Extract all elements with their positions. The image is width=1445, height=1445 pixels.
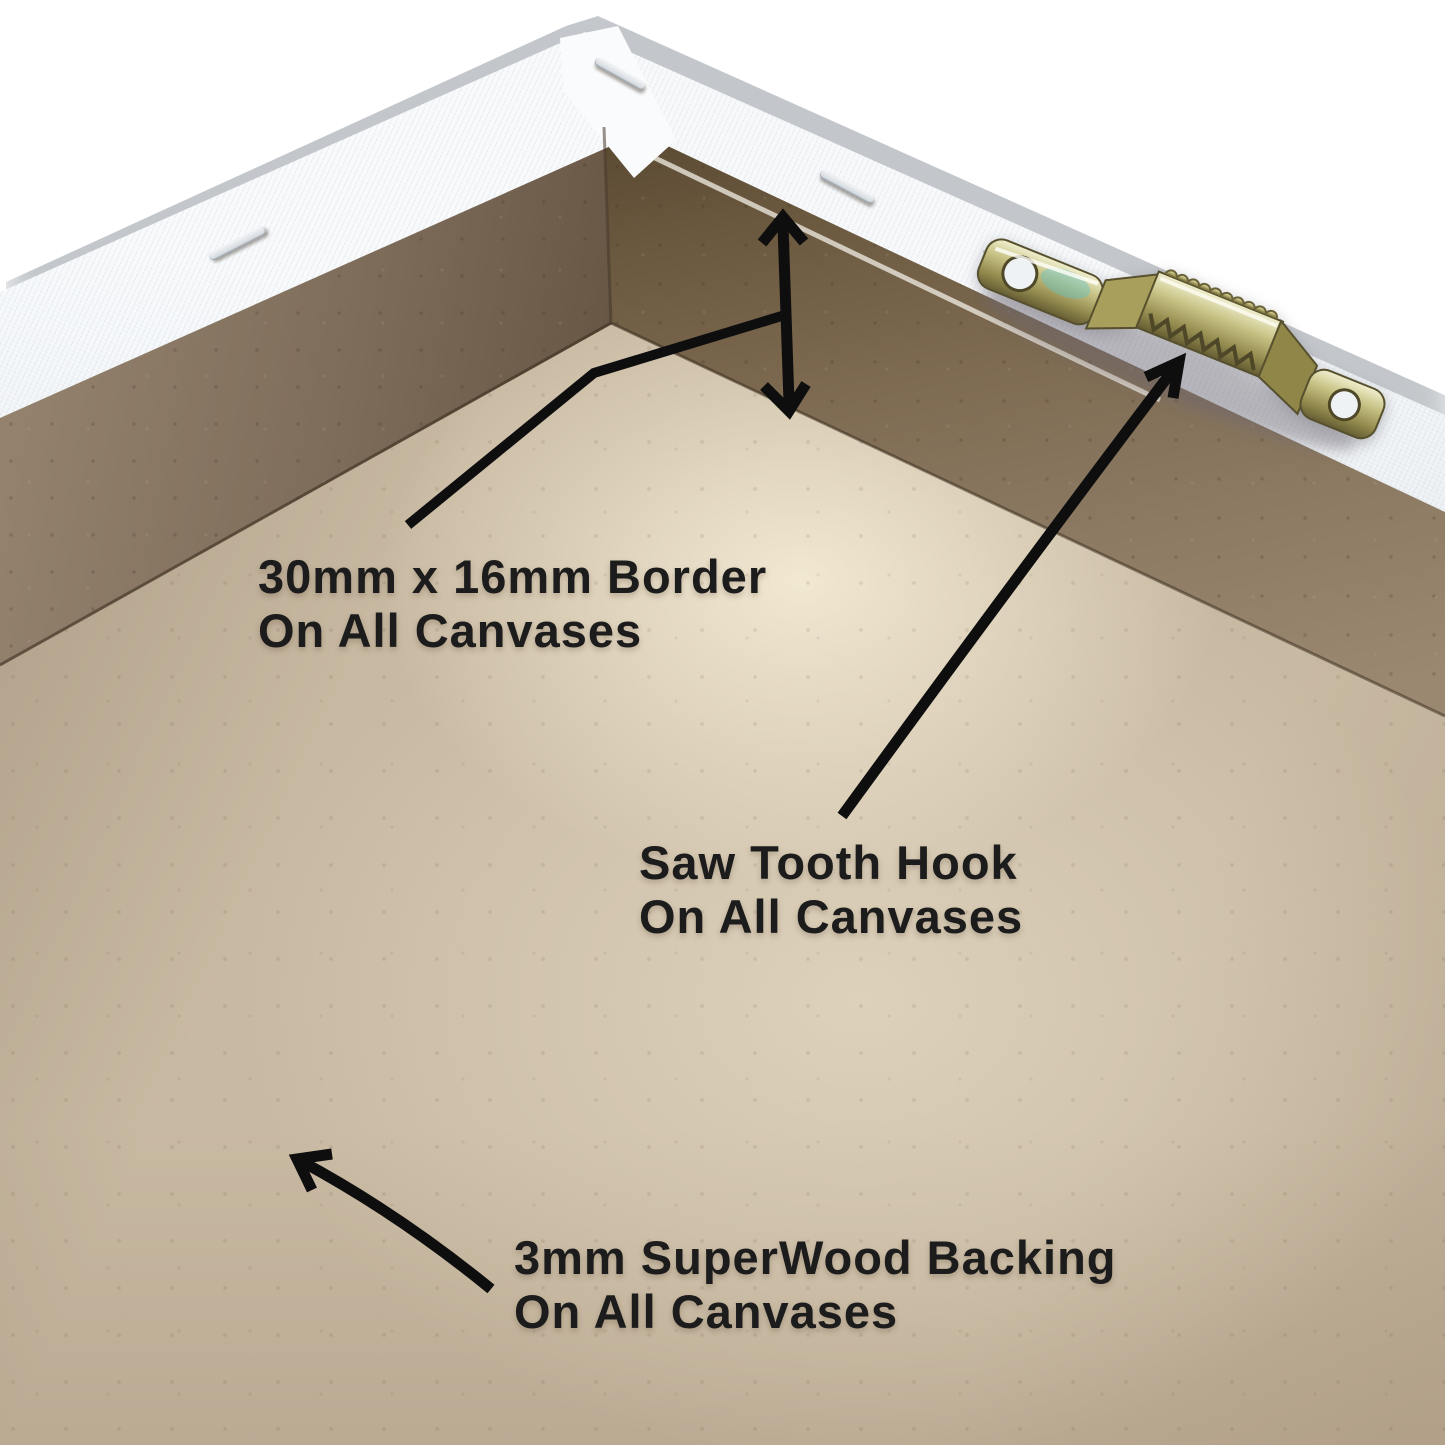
border-annotation-line1: 30mm x 16mm Border [258,550,767,604]
saw-tooth-annotation: Saw Tooth Hook On All Canvases [639,836,1023,944]
saw-tooth-hook [975,168,1445,468]
backing-annotation: 3mm SuperWood Backing On All Canvases [514,1231,1117,1339]
saw-tooth-annotation-line2: On All Canvases [639,890,1023,944]
backing-annotation-line2: On All Canvases [514,1285,1117,1339]
border-annotation-line2: On All Canvases [258,604,767,658]
border-annotation: 30mm x 16mm Border On All Canvases [258,550,767,658]
backing-annotation-line1: 3mm SuperWood Backing [514,1231,1117,1285]
annotated-canvas-back-photo: 30mm x 16mm Border On All Canvases Saw T… [0,0,1445,1445]
saw-tooth-annotation-line1: Saw Tooth Hook [639,836,1023,890]
